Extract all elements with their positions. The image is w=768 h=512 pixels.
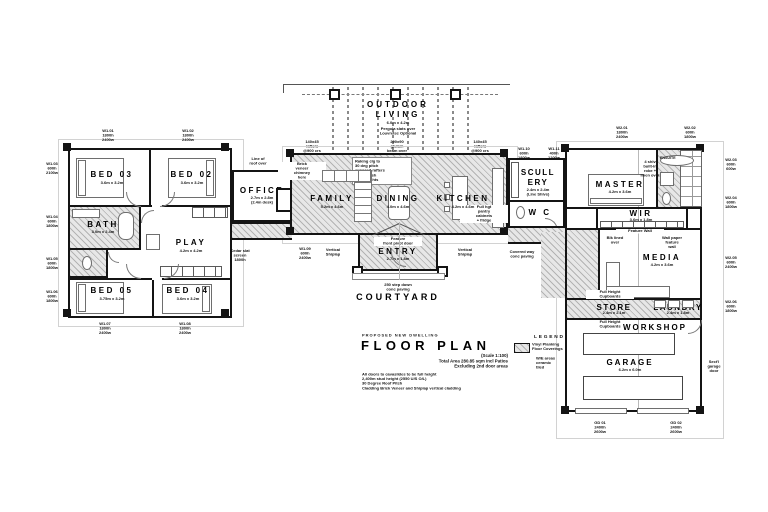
pier — [221, 309, 229, 317]
pier — [63, 309, 71, 317]
west-link-corridor — [232, 222, 292, 240]
pivot-door-note: Feature front pivot door — [374, 237, 422, 246]
bath-vanity — [72, 209, 100, 218]
centreline — [399, 222, 400, 280]
title-overline: PROPOSED NEW DWELLING — [362, 333, 462, 338]
pergola-rafter — [422, 87, 424, 153]
pier — [221, 143, 229, 151]
courtyard-label: COURTYARD — [333, 292, 463, 303]
pier — [561, 406, 569, 414]
room-dims-master: 4.2m x 3.6m — [596, 190, 644, 194]
window-mark: W1.06 600h 1800w — [28, 290, 76, 303]
outdoor-living-label-2: LIVING — [333, 110, 463, 120]
dryer — [668, 300, 680, 308]
window-mark: W2.06 600h 1800w — [707, 300, 755, 313]
robe-over-note: 4 shlv built-in robe + linen over — [626, 160, 674, 178]
room-dims-bed03: 3.6m x 3.2m — [88, 181, 136, 185]
shelf-unit — [322, 170, 372, 182]
room-dims-bath: 3.0m x 2.4m — [79, 230, 127, 234]
window-mark: W2.02 600h 1800w — [666, 126, 714, 139]
legend-swatch-label: Vinyl Planking Floor Coverings — [532, 342, 617, 351]
room-dims-bed02: 3.6m x 3.2m — [168, 181, 216, 185]
window-mark: W2.03 600h 600w — [707, 158, 755, 171]
pergola-post — [390, 89, 401, 100]
legend-heading: LEGEND — [534, 334, 594, 339]
window-mark: W1.05 600h 1800w — [28, 257, 76, 270]
toilet — [662, 192, 671, 205]
shiplap-note-right: Vertical Shiplap — [441, 248, 489, 257]
outdoor-living-note: Pergola slats over Louvretec Optional — [374, 127, 422, 136]
pier — [286, 149, 294, 157]
window-mark: W1.02 1800h 2400w — [164, 129, 212, 142]
pergola-post — [450, 89, 461, 100]
toilet — [82, 256, 92, 270]
outdoor-living-dims: 6.0m x 4.2m — [374, 121, 422, 125]
wallpaper-note: Wall paper feature wall — [648, 236, 696, 249]
room-dims-bed04: 3.6m x 3.2m — [164, 297, 212, 301]
floor-plan-canvas: OUTDOOR LIVING 6.0m x 4.2m Pergola slats… — [0, 0, 768, 512]
step-note: 250 step down conc paving — [374, 283, 422, 292]
outdoor-living-label-1: OUTDOOR — [333, 100, 463, 110]
window-mark: W2.04 600h 1800w — [707, 196, 755, 209]
window-mark: W2.05 600h 2400w — [707, 256, 755, 269]
bed-pillow — [590, 198, 642, 204]
feature-wall-note: Feature Wall — [616, 229, 664, 233]
stool — [444, 182, 450, 188]
covered-way-note: Covered way conc paving — [498, 250, 546, 259]
legend-swatch — [514, 343, 530, 353]
window-mark: W1.08 1800h 2400w — [161, 322, 209, 335]
chimney-note: Brick veneer chimney here — [278, 162, 326, 180]
window-mark: W1.04 600h 1800w — [28, 215, 76, 228]
window-mark: GD 02 2400h 2600w — [652, 421, 700, 434]
pier — [63, 143, 71, 151]
pergola-rafter — [362, 87, 364, 153]
window-mark: W1.03 600h 2100w — [28, 162, 76, 175]
roof-line-tick — [283, 84, 284, 93]
legend-note: W/E areas ceramic tiled — [536, 356, 621, 370]
car-space — [583, 376, 683, 400]
pergola-rafter — [437, 87, 439, 153]
room-dims-dining: 4.0m x 4.6m — [374, 205, 422, 209]
drawing-title: FLOOR PLAN — [361, 338, 491, 353]
room-dims-family: 5.2m x 4.6m — [308, 205, 356, 209]
window-mark: W2.01 1800h 2400w — [598, 126, 646, 139]
shiplap-note-left: Vertical Shiplap — [309, 248, 357, 257]
wardrobe — [600, 221, 684, 228]
title-notes: All doors to cavaslides to be full heigh… — [362, 372, 472, 390]
blk-lined-note: Blk lined over — [591, 236, 639, 245]
pier — [500, 227, 508, 235]
window-mark: W1.01 1800h 2400w — [84, 129, 132, 142]
room-dims-laundry: 2.4m x 1.8m — [654, 311, 702, 315]
pergola-rafter — [347, 87, 349, 153]
room-dims-media: 4.2m x 3.6m — [638, 263, 686, 267]
wall — [162, 278, 230, 280]
room-label-bed04: BED 04 — [123, 286, 253, 296]
wall — [510, 200, 563, 202]
garage-door-panel — [575, 408, 627, 414]
window-mark: GD 01 2400h 2600w — [576, 421, 624, 434]
room-label-master: MASTER — [555, 180, 685, 190]
garage-door-note: Sect'l garage door — [690, 360, 738, 373]
covered-way-south — [541, 232, 565, 298]
robe-bed02 — [192, 207, 228, 218]
room-dims-play: 4.2m x 4.2m — [167, 249, 215, 253]
roof-over-note: Line of roof over — [234, 157, 282, 166]
window-mark: Cedar slat screen 1800h — [216, 249, 264, 262]
room-dims-bed05: 3.75m x 3.2m — [88, 297, 136, 301]
pier — [286, 227, 294, 235]
pier — [696, 406, 704, 414]
pier — [561, 144, 569, 152]
laundry-tub — [682, 300, 694, 308]
garage-door-panel — [637, 408, 689, 414]
title-subnotes: (Scale 1:100) Total Area 280.85 sqm incl… — [431, 353, 508, 369]
washing-machine — [654, 300, 666, 308]
toilet — [516, 206, 525, 219]
roof-line — [283, 84, 510, 85]
window-mark: W1.07 1800h 2400w — [81, 322, 129, 335]
pergola-post — [329, 89, 340, 100]
cupboards-note-top: Full Height Cupboards — [586, 290, 634, 299]
